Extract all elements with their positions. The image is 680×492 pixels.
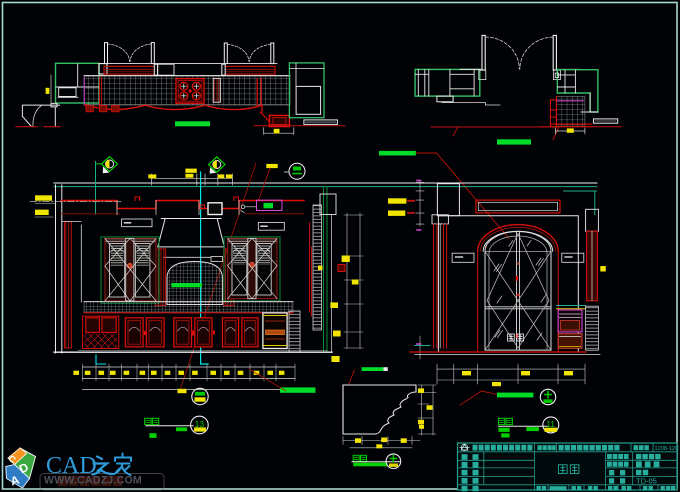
svg-text:1208-12C: 1208-12C: [655, 446, 680, 452]
svg-text:CAD: CAD: [46, 453, 97, 479]
svg-text:11: 11: [546, 419, 555, 429]
svg-text:TD-05: TD-05: [636, 477, 657, 486]
